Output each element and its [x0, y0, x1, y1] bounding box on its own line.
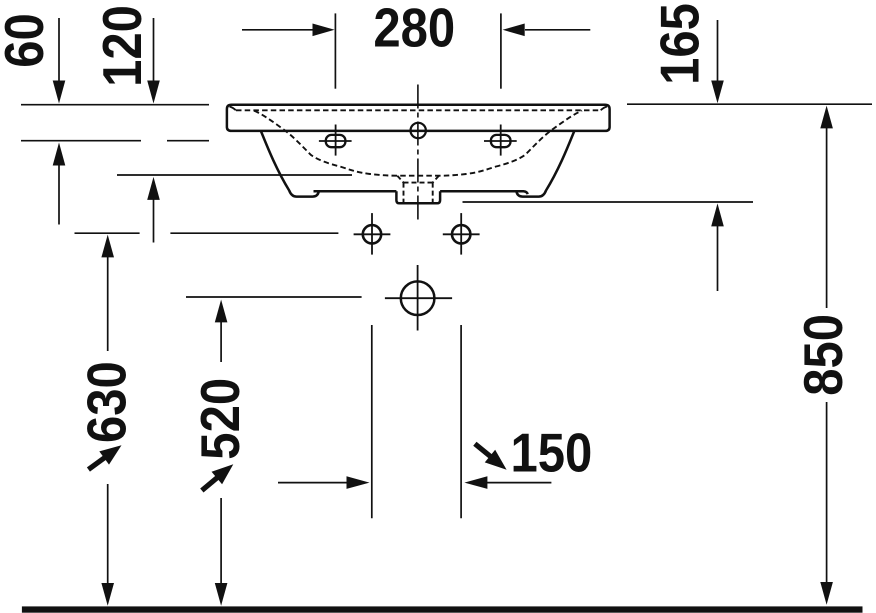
svg-text:280: 280	[373, 0, 455, 58]
svg-text:120: 120	[91, 5, 152, 87]
svg-text:520: 520	[190, 378, 251, 460]
svg-text:850: 850	[792, 314, 853, 396]
svg-text:150: 150	[510, 422, 592, 483]
svg-text:60: 60	[0, 13, 54, 68]
svg-text:165: 165	[649, 3, 710, 85]
svg-text:630: 630	[76, 361, 137, 443]
